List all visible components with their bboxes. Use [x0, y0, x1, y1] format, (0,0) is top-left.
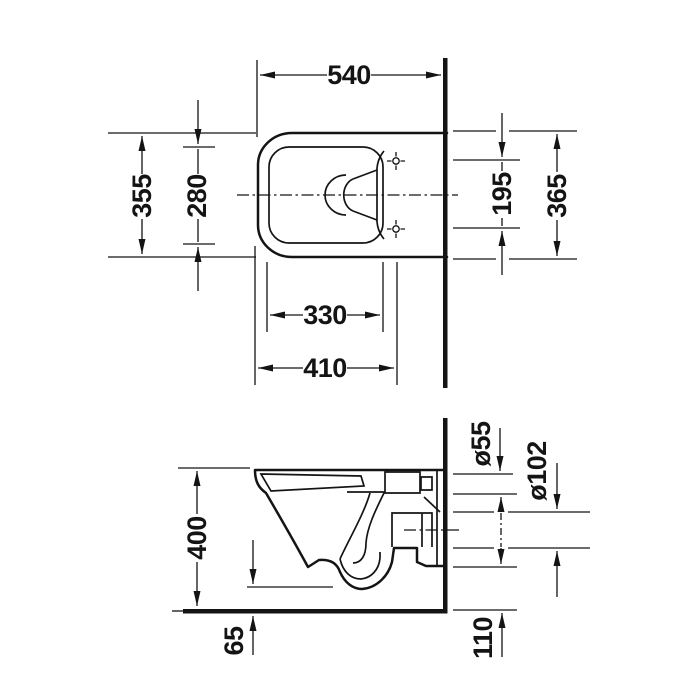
- drawing-canvas: 540 355 280: [0, 0, 700, 700]
- dim-400: 400: [178, 468, 250, 606]
- wall-section-top-view: [443, 58, 448, 388]
- dim-110: 110: [468, 613, 502, 659]
- dim-400-label: 400: [182, 516, 212, 560]
- dim-195: 195: [453, 113, 520, 275]
- dim-102: ø102: [522, 441, 557, 597]
- fixing-hole-top-icon: [387, 152, 405, 170]
- dim-65-label: 65: [219, 626, 249, 656]
- dim-355-label: 355: [127, 174, 157, 218]
- fixing-hole-bottom-icon: [387, 220, 405, 238]
- toilet-inner-details: [261, 471, 461, 579]
- floor-line: [183, 609, 448, 614]
- top-view: 540 355 280: [108, 58, 577, 388]
- dim-280: 280: [182, 100, 215, 291]
- dim-102-label: ø102: [522, 441, 552, 501]
- dim-110-label: 110: [468, 617, 498, 659]
- dim-365-label: 365: [542, 174, 572, 218]
- dim-195-label: 195: [487, 172, 517, 216]
- dim-540-label: 540: [327, 60, 371, 90]
- dim-330: 330: [267, 262, 383, 332]
- dim-65: 65: [219, 540, 333, 656]
- dim-540: 540: [257, 60, 441, 137]
- dim-280-label: 280: [182, 174, 212, 218]
- technical-drawing: 540 355 280: [0, 0, 700, 700]
- wall-section-side-view: [443, 418, 448, 613]
- dim-330-label: 330: [303, 300, 347, 330]
- dim-55: ø55: [466, 421, 500, 471]
- dim-55-label: ø55: [466, 421, 496, 467]
- dim-410-label: 410: [303, 353, 347, 383]
- side-view: 400 65 ø55: [172, 418, 590, 659]
